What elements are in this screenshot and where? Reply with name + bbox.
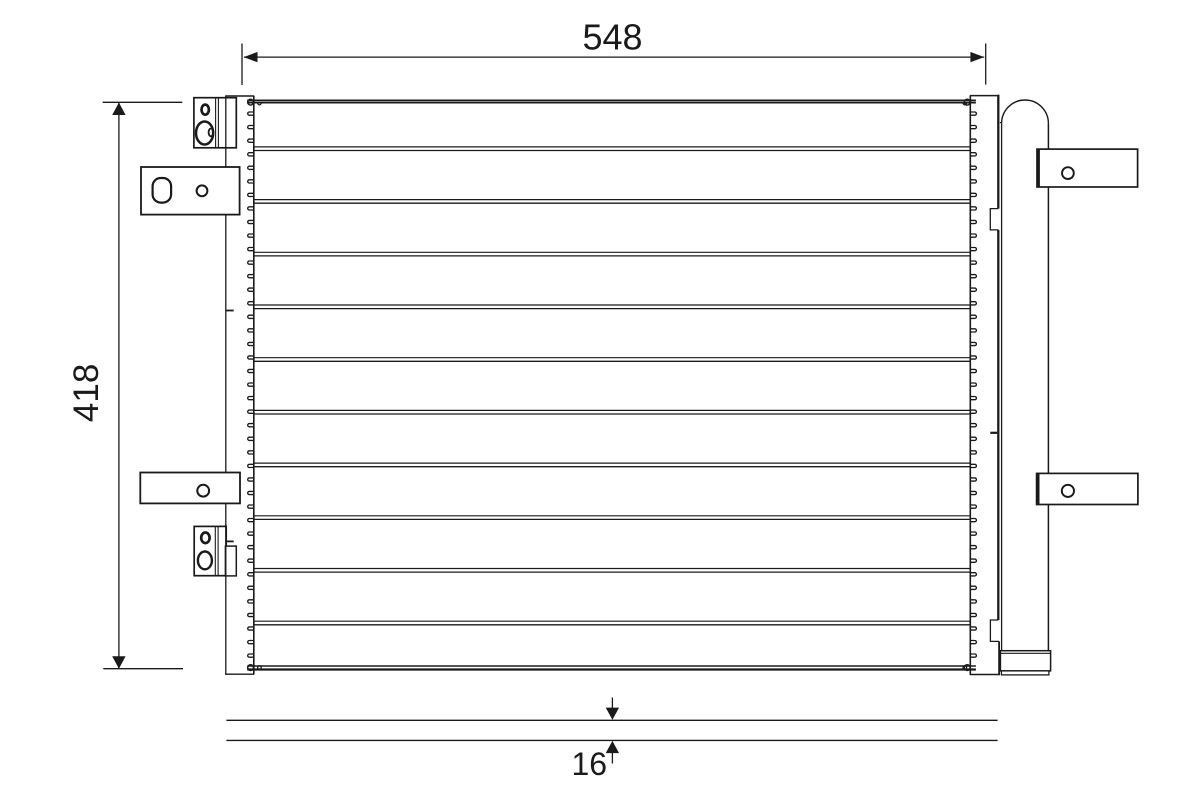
svg-text:16: 16 [572,746,608,782]
svg-text:418: 418 [67,364,106,422]
svg-text:548: 548 [582,17,642,58]
